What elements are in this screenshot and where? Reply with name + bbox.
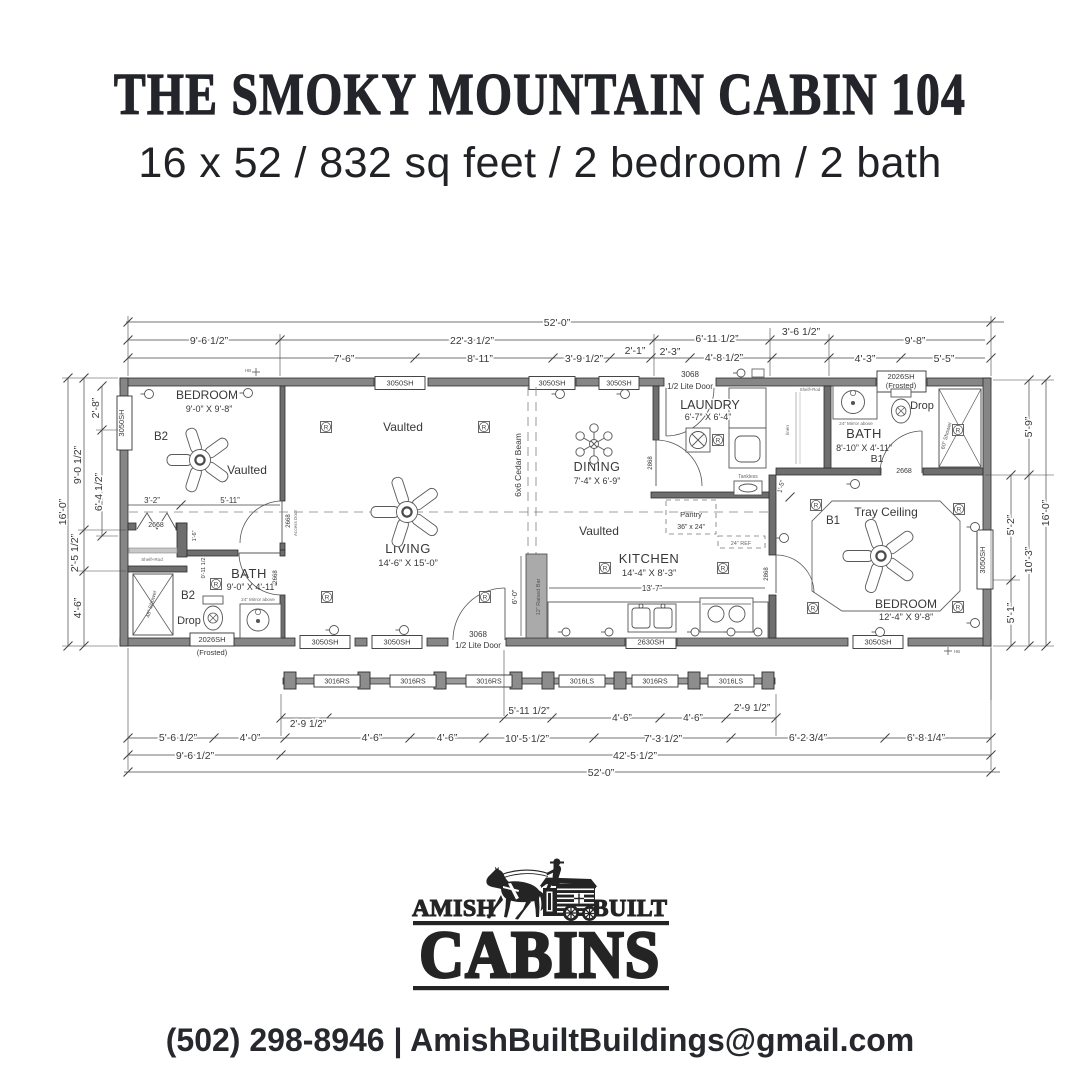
svg-text:2'-8”: 2'-8” [90,397,102,418]
svg-text:3050SH: 3050SH [117,409,126,436]
svg-text:2630SH: 2630SH [637,638,664,647]
svg-text:8'-11”: 8'-11” [467,353,493,365]
svg-text:52'-0”: 52'-0” [544,317,571,329]
svg-text:Drop: Drop [910,400,934,412]
svg-text:3016RS: 3016RS [324,679,350,686]
svg-text:4'-0”: 4'-0” [240,732,261,744]
svg-text:B1: B1 [826,515,840,527]
svg-text:42'-5 1/2”: 42'-5 1/2” [613,750,658,762]
svg-text:3016RS: 3016RS [642,679,668,686]
svg-text:linen: linen [785,425,791,435]
svg-text:R: R [716,437,721,444]
svg-text:Vaulted: Vaulted [579,524,619,538]
svg-text:9'-0” X 4'-11”: 9'-0” X 4'-11” [227,582,278,592]
svg-text:3050SH: 3050SH [864,638,891,647]
svg-text:6'-4 1/2”: 6'-4 1/2” [93,472,105,511]
svg-text:Drop: Drop [177,615,201,627]
svg-text:HB: HB [954,649,960,654]
svg-text:R: R [324,424,329,431]
svg-text:R: R [956,604,961,611]
svg-text:12” Raised Bar: 12” Raised Bar [536,578,542,615]
svg-text:3050SH: 3050SH [311,638,338,647]
svg-text:R: R [957,506,962,513]
svg-text:6x6 Cedar Beam: 6x6 Cedar Beam [513,433,523,497]
svg-text:6'-7” X 6'-4”: 6'-7” X 6'-4” [685,412,731,422]
svg-text:5'-5”: 5'-5” [934,353,955,365]
svg-text:9'-6 1/2”: 9'-6 1/2” [190,335,229,347]
svg-text:52'-0”: 52'-0” [588,767,615,779]
svg-text:R: R [482,424,487,431]
svg-text:(Frosted): (Frosted) [197,648,228,657]
svg-text:3050SH: 3050SH [383,638,410,647]
svg-text:3068: 3068 [469,630,487,639]
svg-text:2868: 2868 [648,456,654,470]
svg-text:Access Door: Access Door [293,510,298,537]
svg-text:2'-3”: 2'-3” [660,346,681,358]
svg-text:10'-3”: 10'-3” [1023,546,1035,573]
svg-text:16'-0”: 16'-0” [57,498,69,525]
svg-text:Vaulted: Vaulted [383,420,423,434]
svg-text:4'-6”: 4'-6” [437,732,458,744]
svg-text:3050SH: 3050SH [538,379,565,388]
svg-text:BEDROOM: BEDROOM [875,597,937,611]
svg-text:THE SMOKY MOUNTAIN CABIN 104: THE SMOKY MOUNTAIN CABIN 104 [114,61,966,127]
svg-text:24” REF: 24” REF [731,541,752,547]
svg-text:2'-9 1/2”: 2'-9 1/2” [290,719,326,730]
svg-text:Shelf+Rod: Shelf+Rod [800,387,821,392]
svg-text:4'-6”: 4'-6” [72,597,84,618]
svg-text:5'-11 1/2”: 5'-11 1/2” [508,706,549,717]
svg-text:3068: 3068 [681,370,699,379]
svg-text:14'-4” X 8'-3”: 14'-4” X 8'-3” [622,568,676,579]
svg-text:4'-6”: 4'-6” [612,713,632,724]
svg-text:5'-2”: 5'-2” [1005,514,1017,535]
svg-text:9'-0” X 9'-8”: 9'-0” X 9'-8” [186,404,232,414]
svg-text:KITCHEN: KITCHEN [619,551,680,566]
svg-text:3050SH: 3050SH [386,379,413,388]
svg-text:2'-9 1/2”: 2'-9 1/2” [734,703,770,714]
svg-text:Vaulted: Vaulted [227,463,267,477]
svg-text:14'-6” X 15'-0”: 14'-6” X 15'-0” [378,558,438,569]
svg-text:R: R [814,502,819,509]
svg-text:7'-4” X 6'-9”: 7'-4” X 6'-9” [574,476,620,486]
svg-text:3016LS: 3016LS [719,679,743,686]
svg-text:0'-11 1/2: 0'-11 1/2 [201,558,207,579]
svg-text:R: R [603,565,608,572]
svg-text:2026SH: 2026SH [198,635,225,644]
svg-text:3050SH: 3050SH [978,546,987,573]
svg-text:2026SH: 2026SH [887,372,914,381]
svg-text:6'-11 1/2”: 6'-11 1/2” [695,333,739,345]
svg-text:3'-6 1/2”: 3'-6 1/2” [782,326,821,338]
svg-text:13'-7”: 13'-7” [642,584,663,593]
svg-text:B2: B2 [181,590,195,602]
svg-text:7'-6”: 7'-6” [334,353,355,365]
svg-text:HB: HB [245,368,251,373]
svg-text:4'-6”: 4'-6” [362,732,383,744]
svg-text:2668: 2668 [286,514,292,528]
svg-text:LAUNDRY: LAUNDRY [680,398,740,412]
svg-text:3'-9 1/2”: 3'-9 1/2” [565,353,604,365]
svg-text:22'-3 1/2”: 22'-3 1/2” [450,335,495,347]
svg-text:1/2 Lite Door: 1/2 Lite Door [667,382,713,391]
svg-text:2'-5 1/2”: 2'-5 1/2” [69,533,81,572]
svg-text:3050SH: 3050SH [606,381,631,388]
svg-text:3016RS: 3016RS [400,679,426,686]
svg-text:10'-5 1/2”: 10'-5 1/2” [505,733,550,745]
svg-text:6'-2 3/4”: 6'-2 3/4” [789,732,828,744]
svg-text:R: R [483,594,488,601]
svg-text:R: R [811,605,816,612]
svg-text:BEDROOM: BEDROOM [176,388,238,402]
svg-text:8'-10” X 4'-11”: 8'-10” X 4'-11” [836,443,892,453]
svg-text:(502) 298-8946 | AmishBuiltBui: (502) 298-8946 | AmishBuiltBuildings@gma… [166,1022,915,1058]
svg-text:1'-6”: 1'-6” [192,530,198,541]
svg-text:B1: B1 [871,453,884,465]
svg-text:BATH: BATH [231,566,267,581]
svg-text:2'-1”: 2'-1” [625,345,646,357]
svg-text:1/2 Lite Door: 1/2 Lite Door [455,641,501,650]
svg-text:36” x 24”: 36” x 24” [677,524,705,531]
svg-text:4'-3”: 4'-3” [855,353,876,365]
svg-text:CABINS: CABINS [419,918,660,992]
svg-text:3'-2”: 3'-2” [144,496,160,505]
svg-text:R: R [214,581,219,588]
svg-text:5'-6 1/2”: 5'-6 1/2” [159,732,198,744]
svg-text:3016LS: 3016LS [570,679,594,686]
svg-text:Pantry: Pantry [680,510,702,519]
svg-text:6'-0”: 6'-0” [510,589,519,604]
svg-text:12'-4” X 9'-8”: 12'-4” X 9'-8” [879,612,933,623]
svg-text:Shelf+Rod: Shelf+Rod [141,557,163,562]
svg-text:9'-8”: 9'-8” [905,335,926,347]
svg-text:2868: 2868 [764,567,770,581]
svg-text:5'-11”: 5'-11” [220,496,240,505]
svg-text:9'-6 1/2”: 9'-6 1/2” [176,750,215,762]
svg-text:5'-9”: 5'-9” [1023,416,1035,437]
svg-text:Tray Ceiling: Tray Ceiling [854,505,918,519]
svg-text:2668: 2668 [896,468,912,475]
svg-text:2668: 2668 [148,522,164,529]
svg-text:R: R [325,594,330,601]
svg-text:16 x 52 / 832 sq feet / 2 bedr: 16 x 52 / 832 sq feet / 2 bedroom / 2 ba… [138,139,941,187]
svg-text:4'-6”: 4'-6” [683,713,703,724]
svg-text:24” Mirror above: 24” Mirror above [839,421,873,426]
svg-text:6'-8 1/4”: 6'-8 1/4” [907,732,946,744]
svg-text:R: R [956,427,961,434]
svg-text:7'-3 1/2”: 7'-3 1/2” [644,733,683,745]
svg-text:24” Mirror above: 24” Mirror above [241,597,275,602]
svg-text:B2: B2 [154,431,168,443]
svg-text:4'-8 1/2”: 4'-8 1/2” [705,352,744,364]
svg-text:Tankless: Tankless [738,474,758,480]
svg-text:3016RS: 3016RS [476,679,502,686]
svg-text:9'-0 1/2”: 9'-0 1/2” [72,445,84,484]
svg-text:R: R [721,565,726,572]
svg-text:16'-0”: 16'-0” [1040,499,1052,526]
svg-text:BATH: BATH [846,426,882,441]
svg-text:5'-1”: 5'-1” [1005,602,1017,623]
